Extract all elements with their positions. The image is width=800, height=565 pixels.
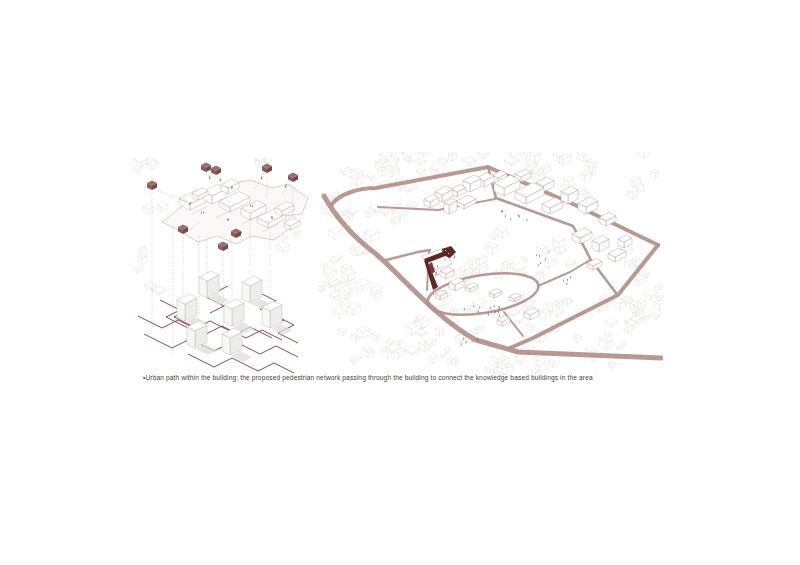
street-tree-dots-layer xyxy=(326,167,656,358)
figure-caption: •Urban path within the building: the pro… xyxy=(143,374,593,381)
isometric-urban-map-drawing xyxy=(318,152,663,382)
exploded-axonometric-diagram xyxy=(132,158,312,376)
exploded-axonometric-drawing xyxy=(132,158,312,376)
tower-blocks-layer xyxy=(177,271,292,362)
page: •Urban path within the building: the pro… xyxy=(0,0,800,565)
pedestrian-road-network-layer xyxy=(324,167,661,358)
isometric-urban-map xyxy=(318,152,663,382)
